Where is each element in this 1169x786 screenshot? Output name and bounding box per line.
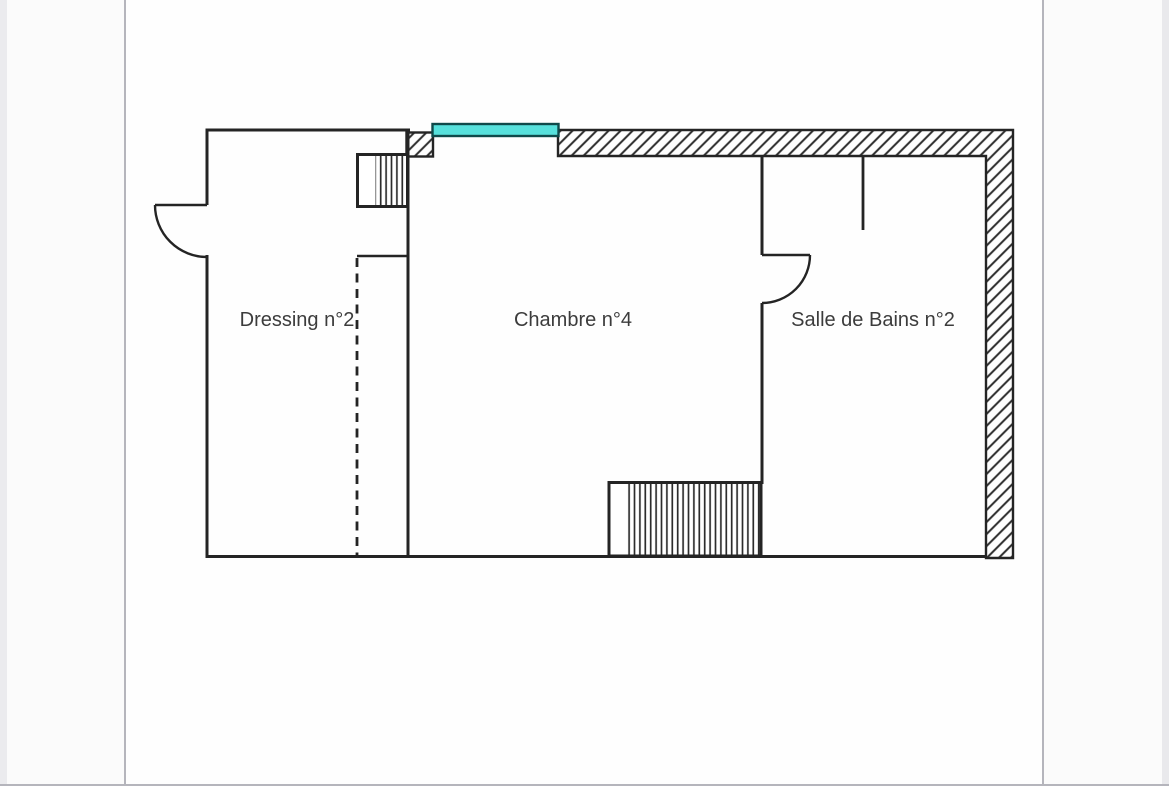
floor-plan-svg: Dressing n°2 Chambre n°4 Salle de Bains … <box>0 0 1169 786</box>
hatched-fixture-top-fill <box>376 156 407 205</box>
document-viewport: Dressing n°2 Chambre n°4 Salle de Bains … <box>0 0 1169 786</box>
door-arc-dressing <box>155 205 207 257</box>
room-label-salle-de-bains: Salle de Bains n°2 <box>791 309 955 331</box>
hatched-fixture-bottom-fill <box>627 484 761 555</box>
room-label-dressing: Dressing n°2 <box>240 309 355 331</box>
wall-pier-left-of-window <box>407 133 434 157</box>
door-arc-sdb <box>762 255 810 303</box>
room-label-chambre: Chambre n°4 <box>514 309 632 331</box>
window-glazing <box>433 124 559 136</box>
